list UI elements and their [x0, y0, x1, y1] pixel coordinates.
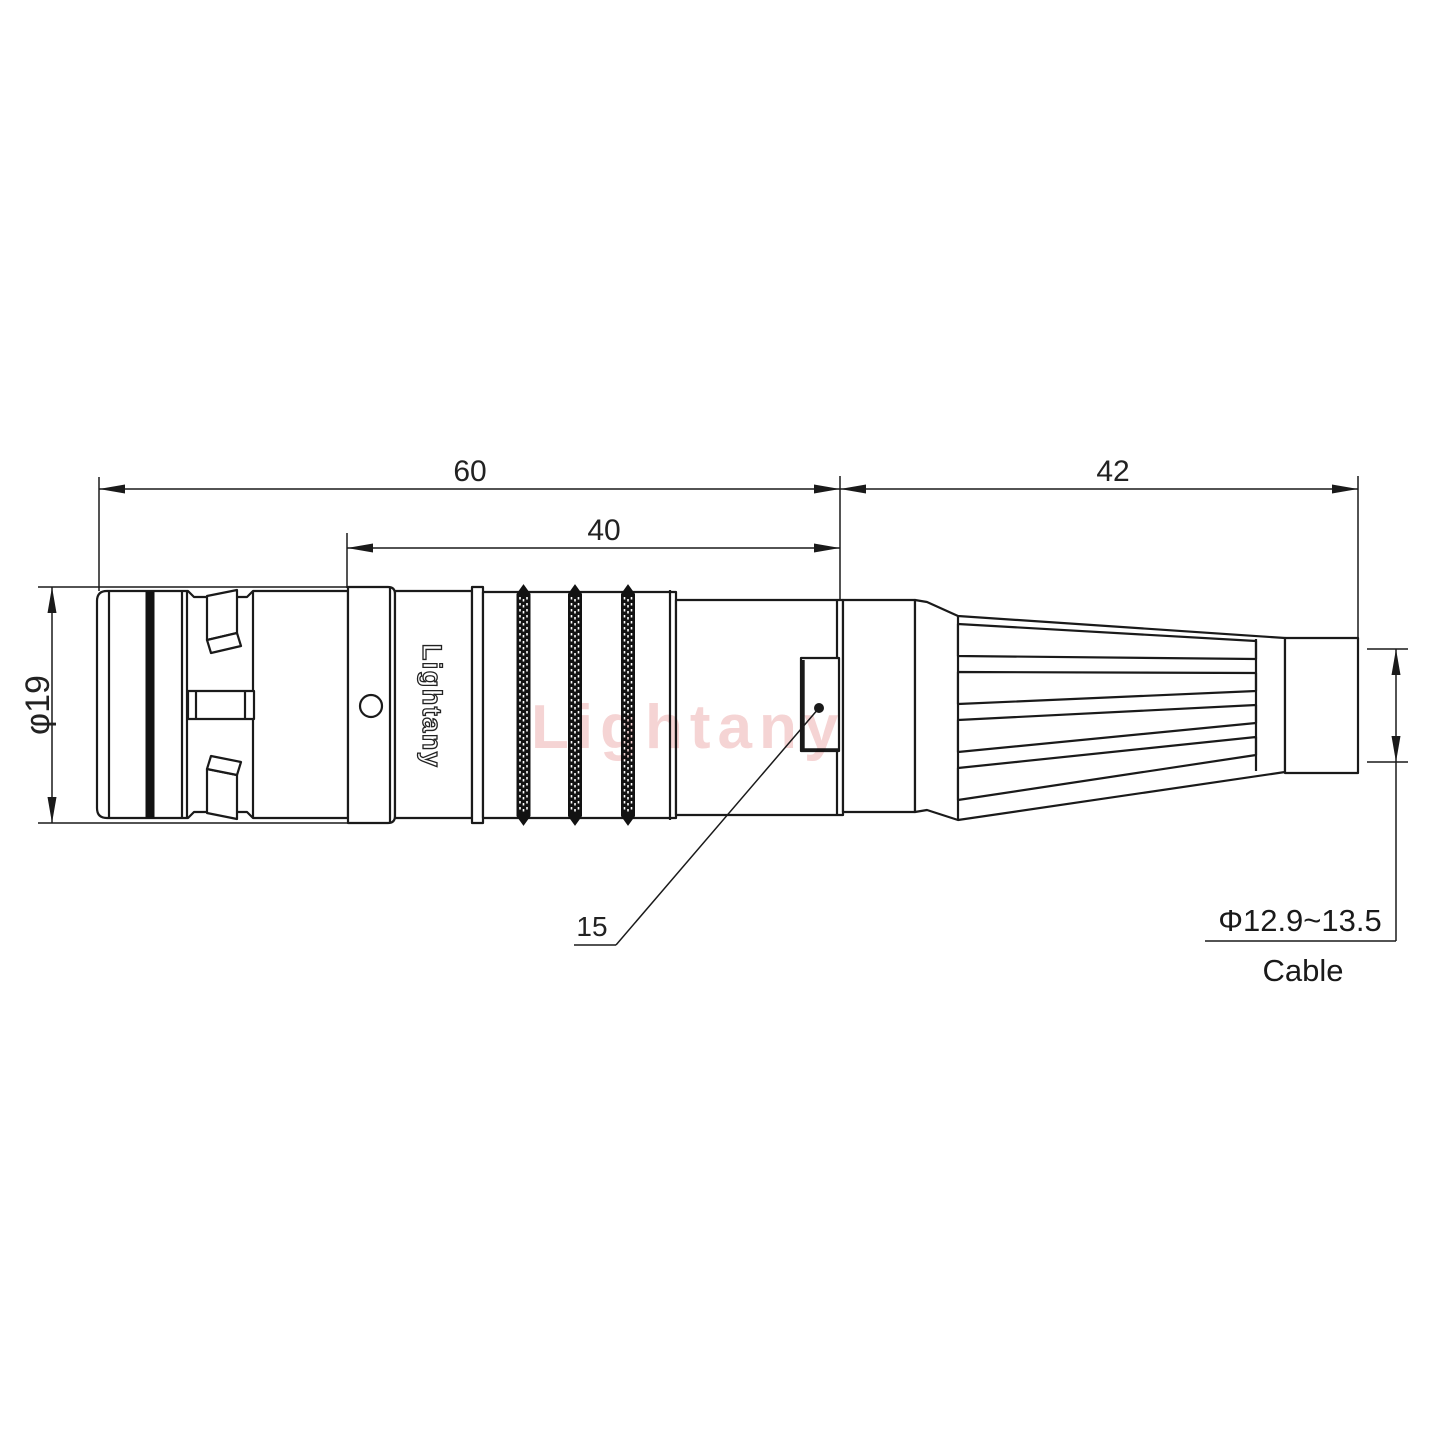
- shell-marking-text: Lightany: [417, 644, 447, 769]
- front-shell: [97, 590, 348, 819]
- bayonet-nub-bottom: [207, 756, 241, 819]
- dim-42: 42: [840, 455, 1358, 494]
- key-slot: [188, 691, 254, 719]
- connector-technical-drawing: Lightany: [0, 0, 1440, 1440]
- front-shell-dark-band: [146, 592, 154, 818]
- knurl-band: [517, 585, 530, 825]
- bayonet-nub-top: [207, 590, 241, 653]
- coupling-collar: [348, 587, 395, 823]
- mid-sleeve: Lightany: [395, 591, 472, 818]
- dim-40-label: 40: [587, 514, 620, 547]
- dim-dia19-label: φ19: [19, 675, 57, 735]
- dim-40: 40: [347, 514, 840, 553]
- dim-42-label: 42: [1096, 455, 1129, 488]
- dim-60-label: 60: [453, 455, 486, 488]
- cable-end-cap: [1285, 638, 1358, 773]
- clamp-nut: [843, 600, 915, 812]
- lip-ring: [472, 587, 483, 823]
- cable-caption: Cable: [1263, 953, 1344, 988]
- strain-relief-boot: [915, 600, 1358, 820]
- watermark: Lightany: [531, 693, 845, 762]
- dim-15-label: 15: [576, 911, 607, 942]
- dim-dia19: φ19: [19, 587, 57, 823]
- leader-dot: [814, 703, 824, 713]
- dim-60: 60: [99, 455, 840, 494]
- cable-diameter-label: Φ12.9~13.5: [1218, 903, 1382, 938]
